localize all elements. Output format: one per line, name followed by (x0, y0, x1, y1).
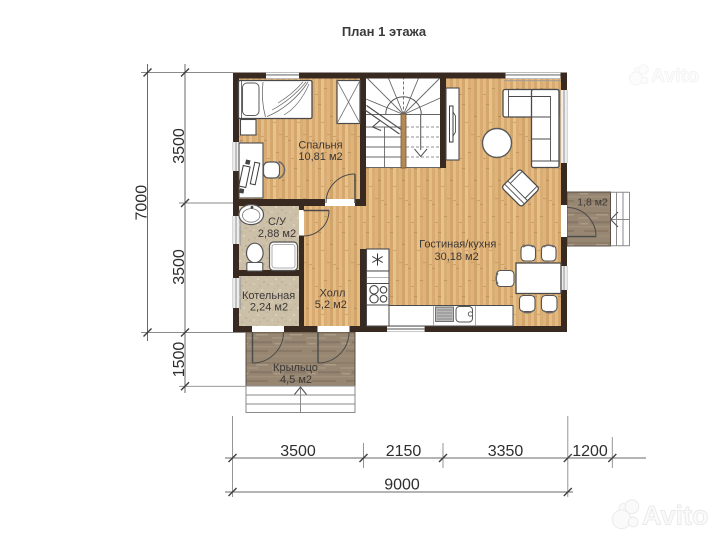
svg-text:Avito: Avito (642, 501, 709, 531)
svg-text:3350: 3350 (488, 443, 524, 460)
svg-text:Avito: Avito (651, 65, 699, 87)
svg-text:1500: 1500 (171, 342, 188, 378)
svg-text:9000: 9000 (384, 477, 420, 494)
svg-text:План 1 этажа: План 1 этажа (342, 24, 427, 39)
svg-text:2150: 2150 (386, 443, 422, 460)
svg-text:7000: 7000 (133, 185, 150, 221)
svg-text:3500: 3500 (171, 128, 188, 164)
svg-text:30,18 м2: 30,18 м2 (434, 251, 478, 263)
svg-text:3500: 3500 (280, 443, 316, 460)
svg-text:10,81 м2: 10,81 м2 (298, 151, 342, 163)
svg-text:5,2 м2: 5,2 м2 (315, 299, 347, 311)
svg-text:1,8 м2: 1,8 м2 (577, 196, 608, 208)
svg-text:Котельная: Котельная (242, 290, 295, 302)
svg-text:2,88 м2: 2,88 м2 (258, 228, 296, 240)
svg-text:4,5 м2: 4,5 м2 (280, 374, 312, 386)
svg-text:Гостиная/кухня: Гостиная/кухня (419, 239, 496, 251)
svg-text:Спальня: Спальня (298, 140, 342, 152)
svg-text:3500: 3500 (171, 249, 188, 285)
svg-text:1200: 1200 (572, 443, 608, 460)
svg-text:Холл: Холл (320, 287, 346, 299)
svg-text:Крыльцо: Крыльцо (273, 362, 318, 374)
svg-text:С/У: С/У (268, 216, 287, 228)
svg-text:2,24 м2: 2,24 м2 (250, 302, 288, 314)
